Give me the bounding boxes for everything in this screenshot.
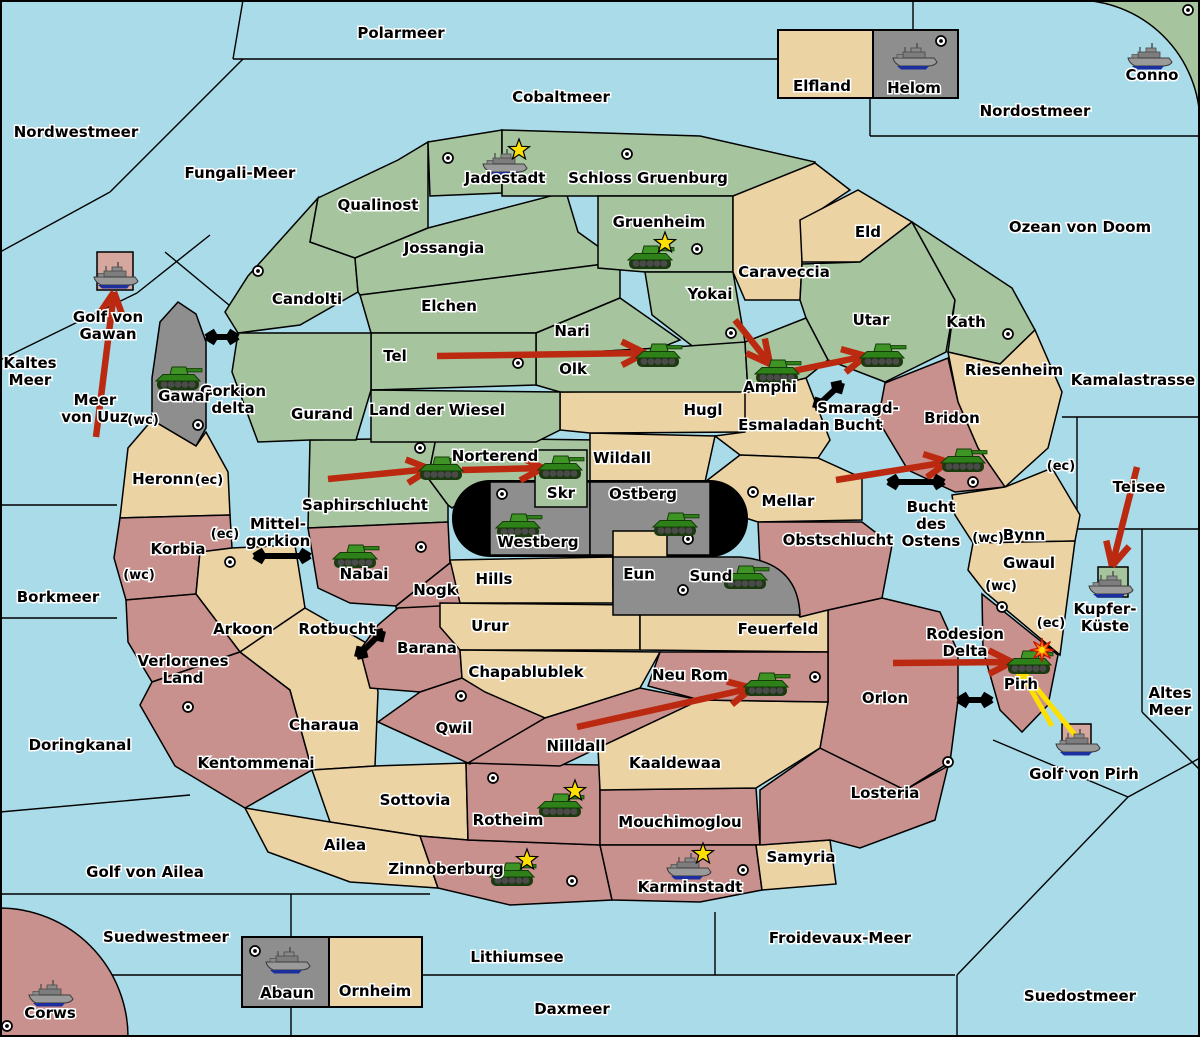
label-losteria: Losteria (851, 784, 920, 802)
label-elfland: Elfland (793, 77, 851, 95)
city-marker (936, 36, 946, 46)
label-tel: Tel (383, 347, 407, 365)
label-froidevaux-meer: Froidevaux-Meer (769, 929, 912, 947)
city-marker (997, 602, 1007, 612)
label-helom: Helom (887, 79, 941, 97)
label-mellar: Mellar (762, 492, 816, 510)
move-arrow-shaft (437, 353, 645, 356)
city-marker (726, 328, 736, 338)
label-olk: Olk (559, 360, 588, 378)
label-samyria: Samyria (767, 848, 836, 866)
label-westberg: Westberg (497, 533, 578, 551)
label-kupfer-küste: Kupfer-Küste (1073, 600, 1136, 635)
label-esmaladan: Esmaladan (738, 416, 830, 434)
city-marker (456, 691, 466, 701)
move-arrow-shaft (893, 662, 1012, 663)
label--ec-: (ec) (1047, 459, 1075, 474)
label-qualinost: Qualinost (338, 196, 419, 214)
label-nogk: Nogk (413, 581, 458, 599)
territory-rotheim[interactable] (466, 763, 600, 845)
label-ostberg: Ostberg (609, 485, 677, 503)
label-ornheim: Ornheim (339, 982, 411, 1000)
city-marker (443, 153, 453, 163)
city-marker (416, 542, 426, 552)
label-karminstadt: Karminstadt (638, 878, 743, 896)
label-orlon: Orlon (862, 689, 908, 707)
city-marker (622, 149, 632, 159)
city-marker (943, 757, 953, 767)
label-daxmeer: Daxmeer (534, 1000, 610, 1018)
strategy-map-svg: PolarmeerNordwestmeerFungali-MeerCobaltm… (0, 0, 1200, 1037)
label-yokai: Yokai (686, 285, 732, 303)
city-marker (513, 358, 523, 368)
label-caraveccia: Caraveccia (738, 263, 830, 281)
label-nari: Nari (554, 322, 589, 340)
label-nordwestmeer: Nordwestmeer (14, 123, 139, 141)
city-marker (183, 702, 193, 712)
label-corws: Corws (24, 1004, 76, 1022)
label--ec-: (ec) (211, 527, 239, 542)
city-marker (415, 443, 425, 453)
city-marker (1183, 5, 1193, 15)
label-doringkanal: Doringkanal (29, 736, 132, 754)
label-golf-von-ailea: Golf von Ailea (86, 863, 204, 881)
label-kentommenai: Kentommenai (197, 754, 314, 772)
label-elchen: Elchen (421, 297, 477, 315)
game-map: PolarmeerNordwestmeerFungali-MeerCobaltm… (0, 0, 1200, 1037)
city-marker (678, 585, 688, 595)
label-wildall: Wildall (593, 449, 651, 467)
label-nabai: Nabai (340, 565, 389, 583)
label-gurand: Gurand (291, 405, 353, 423)
ferry-arrow-head (831, 383, 842, 385)
combat-burst-icon (1030, 638, 1054, 662)
label-eld: Eld (855, 223, 881, 241)
label-saphirschlucht: Saphirschlucht (302, 496, 428, 514)
label-kamalastrasse: Kamalastrasse (1071, 371, 1195, 389)
label-teisee: Teisee (1113, 478, 1166, 496)
territory-saphirschlucht[interactable] (308, 438, 448, 528)
city-marker (225, 557, 235, 567)
label-norterend: Norterend (452, 447, 539, 465)
label-obstschlucht: Obstschlucht (783, 531, 894, 549)
label-kaltes-meer: KaltesMeer (3, 354, 56, 389)
city-marker (968, 477, 978, 487)
label-golf-von-pirh: Golf von Pirh (1029, 765, 1139, 783)
label-polarmeer: Polarmeer (357, 24, 445, 42)
label--wc-: (wc) (123, 568, 155, 583)
label-bridon: Bridon (924, 409, 980, 427)
label-ozean-von-doom: Ozean von Doom (1009, 218, 1151, 236)
label-zinnoberburg: Zinnoberburg (388, 860, 504, 878)
label-conno: Conno (1126, 66, 1179, 84)
label-amphi: Amphi (743, 378, 797, 396)
city-marker (738, 865, 748, 875)
label-abaun: Abaun (260, 984, 314, 1002)
label-utar: Utar (853, 311, 890, 329)
label-gawar: Gawar (158, 387, 212, 405)
label-cobaltmeer: Cobaltmeer (512, 88, 610, 106)
city-marker (2, 1021, 12, 1031)
label-skr: Skr (547, 484, 576, 502)
label-sottovia: Sottovia (380, 791, 451, 809)
label-candolti: Candolti (272, 290, 342, 308)
label-land-der-wiesel: Land der Wiesel (369, 401, 505, 419)
label-jossangia: Jossangia (403, 239, 485, 257)
label-eun: Eun (623, 565, 655, 583)
label--wc-: (wc) (972, 531, 1004, 546)
label-chapablublek: Chapablublek (468, 663, 584, 681)
city-marker (253, 266, 263, 276)
label-altes-meer: AltesMeer (1148, 684, 1191, 719)
label-hills: Hills (476, 570, 513, 588)
label-arkoon: Arkoon (213, 620, 273, 638)
label-neu-rom: Neu Rom (652, 666, 728, 684)
label-suedwestmeer: Suedwestmeer (103, 928, 229, 946)
label-golf-von-gawan: Golf vonGawan (73, 308, 143, 343)
move-arrow-shaft (462, 468, 543, 470)
label--ec-: (ec) (195, 473, 223, 488)
label-urur: Urur (471, 617, 509, 635)
label-feuerfeld: Feuerfeld (738, 620, 819, 638)
label-pirh: Pirh (1004, 675, 1038, 693)
label-kath: Kath (946, 313, 986, 331)
label-rotheim: Rotheim (473, 811, 544, 829)
label-ailea: Ailea (324, 836, 366, 854)
label-bynn: Bynn (1003, 526, 1046, 544)
territory-hills[interactable] (450, 557, 613, 603)
label-sund: Sund (690, 567, 733, 585)
city-marker (748, 487, 758, 497)
label-lithiumsee: Lithiumsee (470, 948, 563, 966)
city-marker (1003, 329, 1013, 339)
city-marker (193, 420, 203, 430)
label-hugl: Hugl (683, 401, 722, 419)
label-gruenheim: Gruenheim (613, 213, 706, 231)
territory-urur[interactable] (440, 603, 640, 650)
label-fungali-meer: Fungali-Meer (185, 164, 296, 182)
label--ec-: (ec) (1037, 616, 1065, 631)
label-nilldall: Nilldall (546, 737, 605, 755)
label-korbia: Korbia (150, 540, 205, 558)
label-borkmeer: Borkmeer (17, 588, 100, 606)
city-marker (250, 946, 260, 956)
label-mittel-gorkion: Mittel-gorkion (246, 515, 311, 550)
city-marker (810, 672, 820, 682)
label-nordostmeer: Nordostmeer (980, 102, 1091, 120)
label-rotbucht: Rotbucht (298, 620, 375, 638)
label-gwaul: Gwaul (1003, 554, 1055, 572)
city-marker (488, 773, 498, 783)
city-marker (692, 244, 702, 254)
label-suedostmeer: Suedostmeer (1024, 987, 1137, 1005)
city-marker (567, 876, 577, 886)
label--wc-: (wc) (127, 413, 159, 428)
label-mouchimoglou: Mouchimoglou (618, 813, 741, 831)
label-riesenheim: Riesenheim (965, 361, 1063, 379)
label-barana: Barana (397, 639, 457, 657)
label-kaaldewaa: Kaaldewaa (629, 754, 721, 772)
label-qwil: Qwil (436, 719, 473, 737)
label-charaua: Charaua (289, 716, 359, 734)
city-marker (497, 489, 507, 499)
label--wc-: (wc) (985, 579, 1017, 594)
label-schloss-gruenburg: Schloss Gruenburg (568, 169, 728, 187)
ferry-arrow-head (357, 646, 360, 657)
label-jadestadt: Jadestadt (464, 169, 546, 187)
label-heronn: Heronn (132, 470, 194, 488)
